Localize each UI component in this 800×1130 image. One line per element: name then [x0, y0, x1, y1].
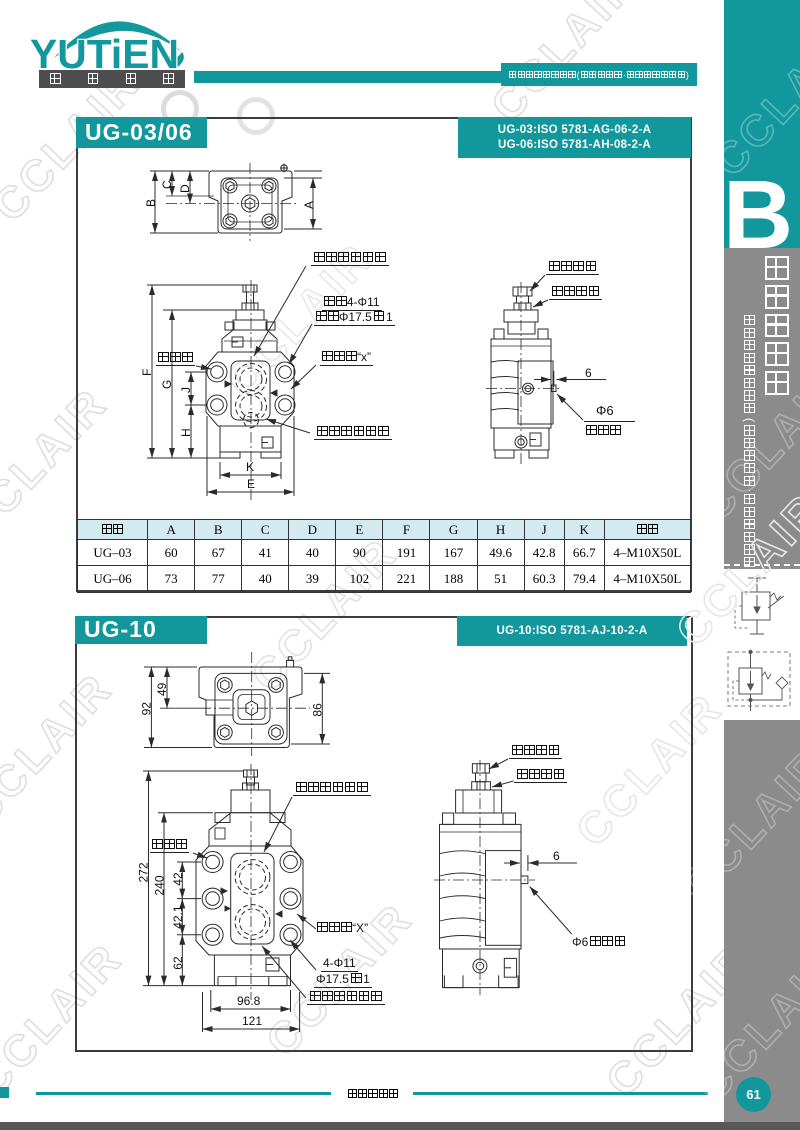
- svg-text:E: E: [247, 477, 255, 491]
- svg-text:92: 92: [139, 702, 153, 716]
- svg-text:G: G: [160, 380, 174, 389]
- svg-text:F: F: [140, 369, 154, 376]
- svg-text:62: 62: [171, 956, 185, 970]
- svg-text:A: A: [302, 201, 316, 209]
- svg-text:K: K: [246, 460, 254, 474]
- svg-text:C: C: [160, 180, 174, 189]
- svg-text:D: D: [178, 184, 192, 193]
- svg-text:B: B: [144, 199, 158, 207]
- svg-text:42: 42: [171, 872, 185, 886]
- svg-text:49: 49: [155, 682, 169, 696]
- svg-text:H: H: [179, 428, 193, 437]
- svg-text:240: 240: [153, 875, 167, 895]
- svg-text:6: 6: [585, 366, 592, 380]
- svg-text:121: 121: [242, 1014, 262, 1028]
- svg-text:42.1: 42.1: [171, 905, 185, 929]
- svg-text:86: 86: [311, 703, 325, 717]
- svg-text:272: 272: [137, 862, 151, 882]
- svg-text:6: 6: [553, 849, 560, 863]
- svg-text:96.8: 96.8: [237, 994, 261, 1008]
- svg-text:J: J: [179, 387, 193, 393]
